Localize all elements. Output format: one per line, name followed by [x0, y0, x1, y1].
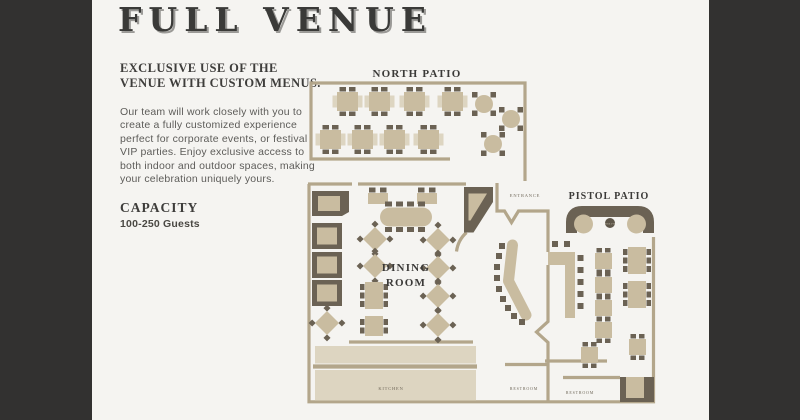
- table: [360, 316, 388, 336]
- restroom-left-label: RESTROOM: [510, 386, 538, 391]
- page-title: FULL VENUE: [118, 0, 433, 39]
- corridor-wall: [537, 265, 549, 401]
- kitchen-pass-counter: [315, 346, 476, 364]
- banquet-oval-table: [380, 202, 432, 233]
- table: [360, 282, 388, 309]
- round-table: [472, 92, 496, 116]
- kitchen-area: [315, 346, 476, 401]
- floor-plan: FIRE PIT NORTH PATIO: [297, 60, 665, 410]
- table: [438, 87, 468, 116]
- round-table: [499, 107, 523, 131]
- diamond-table: [420, 307, 457, 344]
- booth: [312, 223, 342, 249]
- content-area: FULL VENUE EXCLUSIVE USE OF THE VENUE WI…: [92, 0, 709, 420]
- table: [400, 87, 430, 116]
- table: [623, 281, 651, 308]
- fire-pit-lounge: FIRE PIT: [572, 212, 649, 234]
- north-patio-label: NORTH PATIO: [372, 68, 461, 80]
- patio-bench: [548, 241, 584, 318]
- capacity-value: 100-250 Guests: [120, 218, 200, 230]
- pistol-patio-furniture: FIRE PIT: [548, 212, 654, 403]
- dining-room-label-line1: DINING: [382, 262, 430, 274]
- fire-pit-label: FIRE PIT: [605, 224, 616, 226]
- table: [365, 87, 395, 116]
- booth: [312, 252, 342, 278]
- table: [595, 317, 612, 343]
- curved-bar: [494, 243, 526, 325]
- booth-row: [312, 191, 349, 306]
- north-patio-furniture: [316, 87, 524, 156]
- table: [629, 334, 646, 360]
- intro-paragraph: Our team will work closely with you to c…: [120, 106, 325, 186]
- corner-stage: [620, 377, 654, 402]
- table: [595, 272, 612, 298]
- entry-curved-wall: [457, 233, 467, 252]
- table: [414, 125, 444, 154]
- table: [581, 342, 598, 368]
- entrance-label: ENTRANCE: [510, 193, 540, 198]
- dining-room-label-line2: ROOM: [386, 277, 426, 289]
- diamond-table: [309, 305, 346, 342]
- round-table: [481, 132, 505, 156]
- pistol-patio-label: PISTOL PATIO: [569, 191, 650, 202]
- venue-page: { "page": { "title": "FULL VENUE", "fram…: [0, 0, 800, 420]
- restroom-right-label: RESTROOM: [566, 390, 594, 395]
- table: [380, 125, 410, 154]
- table: [333, 87, 363, 116]
- table: [348, 125, 378, 154]
- table: [595, 248, 612, 274]
- entry-corner-structure: [464, 187, 493, 233]
- table: [623, 247, 651, 274]
- capacity-heading: CAPACITY: [120, 200, 198, 216]
- booth: [312, 280, 342, 306]
- table: [316, 125, 346, 154]
- kitchen-label: KITCHEN: [378, 386, 403, 391]
